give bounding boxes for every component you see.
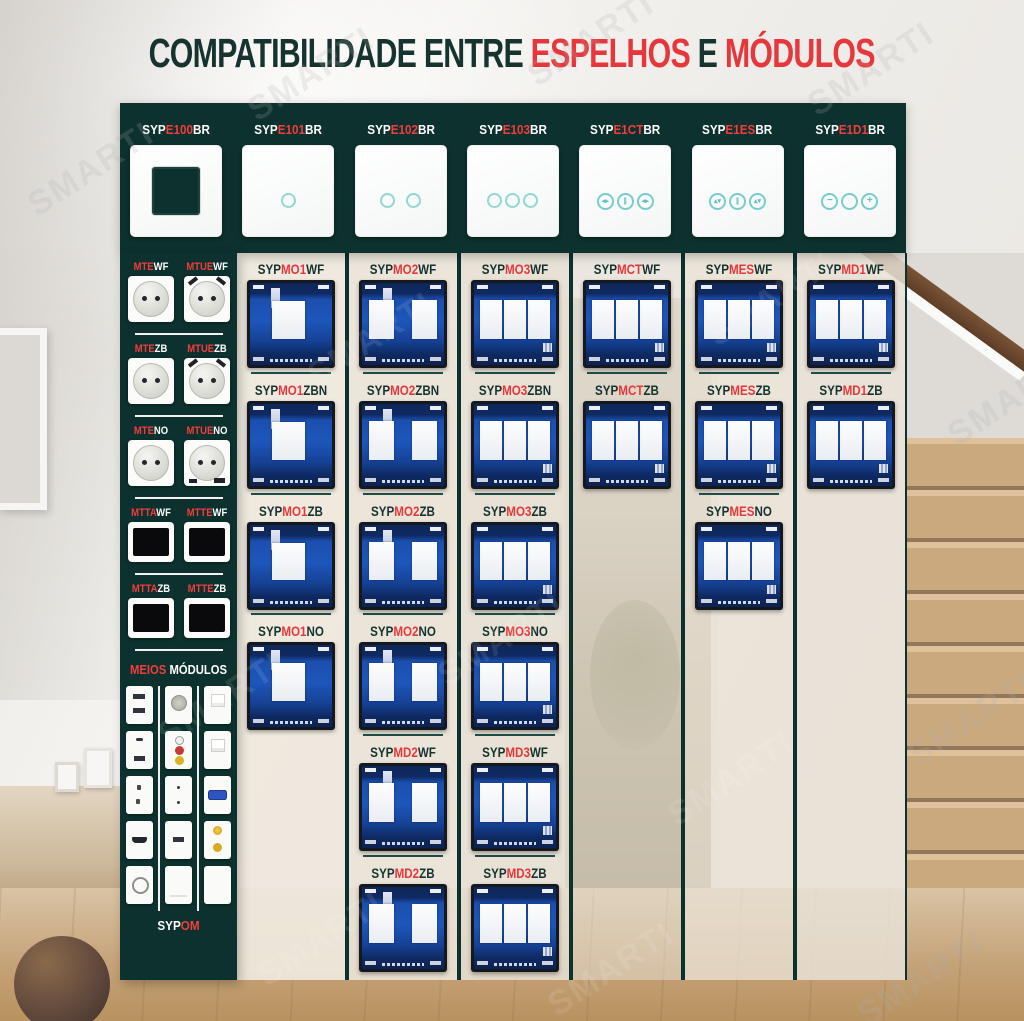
module-pcb-photo: [359, 522, 447, 610]
divider: [135, 333, 223, 335]
faceplate-code: SYPE103BR: [462, 122, 563, 137]
touch-circle-icon: [487, 193, 502, 208]
faceplate-code: SYPE101BR: [238, 122, 339, 137]
module-pcb-photo: [359, 763, 447, 851]
screen-pair-row: MTTAZB MTTEZB: [120, 583, 237, 638]
touch-zone: [412, 904, 437, 943]
touch-zone: [369, 663, 394, 702]
touch-zone: [480, 904, 502, 943]
touch-zone: [412, 421, 437, 460]
module-cell: SYPMD3WF: [461, 736, 569, 857]
qr-code: [543, 585, 552, 594]
module-cell: SYPMO2NO: [349, 615, 457, 736]
pcb-print: [382, 359, 424, 362]
half-module-photo: [165, 821, 192, 859]
qr-code: [655, 343, 664, 352]
touch-zone: [369, 542, 394, 581]
module-code: SYPMO2WF: [357, 262, 450, 277]
touch-zone: [504, 663, 526, 702]
touch-zone: [752, 542, 774, 581]
curtain-open-icon: ◂▸: [597, 193, 614, 210]
pcb-print: [606, 480, 648, 483]
module-pcb-photo: [471, 401, 559, 489]
touch-zone: [480, 663, 502, 702]
faceplate-card: SYPE102BR: [345, 103, 457, 253]
divider: [135, 573, 223, 575]
sidebar-module: MTTAZB: [127, 583, 175, 638]
module-column-mo3: SYPMO3WF SYPMO3ZBN SYP: [461, 253, 573, 980]
qr-code: [655, 464, 664, 473]
divider: [135, 497, 223, 499]
touch-zone: [412, 300, 437, 339]
touch-zone: [272, 422, 305, 460]
sideboard: [0, 786, 122, 896]
pcb-print: [494, 842, 536, 845]
module-cell: SYPMESNO: [685, 495, 793, 616]
pcb: [362, 766, 444, 848]
touch-zone: [504, 421, 526, 460]
half-module-photo: [126, 686, 153, 724]
pcb: [586, 404, 668, 486]
touch-screen-photo: [128, 598, 174, 638]
module-code: MTEWF: [130, 261, 171, 273]
socket-pair-row: MTENO MTUENO: [120, 425, 237, 486]
half-module-photo: [204, 866, 231, 904]
sidebar-panel: MTEWF MTUEWF MTEZB MTUEZB MTENO: [120, 253, 237, 980]
pause-icon: ∥: [617, 193, 634, 210]
pcb-print: [382, 601, 424, 604]
module-pcb-photo: [247, 280, 335, 368]
shade-up-down-icon: ▴▾: [709, 193, 726, 210]
touch-zone: [480, 421, 502, 460]
half-module-photo: [165, 866, 192, 904]
sidebar-module: MTEZB: [127, 343, 175, 404]
half-module-photo: [204, 731, 231, 769]
touch-zone: [369, 421, 394, 460]
half-modules-grid: [120, 686, 237, 911]
touch-zone: [480, 783, 502, 822]
sidebar-module: MTENO: [127, 425, 175, 486]
vase: [14, 936, 110, 1021]
faceplate-dimmer-photo: − +: [804, 145, 896, 237]
qr-code: [767, 343, 776, 352]
pcb-print: [718, 601, 760, 604]
shade-up-down-icon: ▴▾: [749, 193, 766, 210]
module-code: SYPMESZB: [693, 383, 786, 398]
touch-zone: [369, 300, 394, 339]
module-code: SYPMESWF: [693, 262, 786, 277]
pcb: [362, 525, 444, 607]
module-code: MTENO: [130, 425, 171, 437]
faceplate-card: SYPE101BR: [232, 103, 344, 253]
photo-frame: [55, 762, 79, 792]
module-pcb-photo: [695, 522, 783, 610]
touch-zone: [704, 542, 726, 581]
module-column-mo2: SYPMO2WF SYPMO2ZBN SYP: [349, 253, 461, 980]
faceplate-card: SYPE1CTBR ◂▸ ∥ ◂▸: [569, 103, 681, 253]
module-pcb-photo: [359, 642, 447, 730]
infographic-canvas: SMARTI SMARTI SMARTI SMARTI SMARTI SMART…: [0, 0, 1024, 1021]
pcb-print: [382, 842, 424, 845]
socket-usb-photo: [184, 440, 230, 486]
touch-circle-icon: [523, 193, 538, 208]
screen-pair-row: MTTAWF MTTEWF: [120, 507, 237, 562]
module-cell: SYPMO3WF: [461, 253, 569, 374]
pcb-print: [830, 359, 872, 362]
sidebar-module: MTUEZB: [183, 343, 231, 404]
half-module-photo: [204, 686, 231, 724]
touch-zone: [369, 904, 394, 943]
module-code: SYPMO3WF: [469, 262, 562, 277]
touch-zone: [728, 300, 750, 339]
faceplate-code: SYPE1CTBR: [575, 122, 676, 137]
module-pcb-photo: [583, 401, 671, 489]
touch-zone: [728, 542, 750, 581]
module-code: SYPMESNO: [693, 504, 786, 519]
touch-zone: [616, 421, 638, 460]
faceplate-card: SYPE1ESBR ▴▾ ∥ ▴▾: [681, 103, 793, 253]
curtain-close-icon: ◂▸: [637, 193, 654, 210]
pcb: [362, 283, 444, 365]
touch-zone: [864, 300, 886, 339]
qr-code: [543, 705, 552, 714]
module-cell: SYPMD2ZB: [349, 857, 457, 978]
touch-zone: [528, 542, 550, 581]
pcb: [474, 887, 556, 969]
pcb: [474, 645, 556, 727]
module-pcb-photo: [471, 280, 559, 368]
sidebar-module: MTUENO: [183, 425, 231, 486]
socket-usb-photo: [184, 276, 230, 322]
module-cell: SYPMO1NO: [237, 615, 345, 736]
module-code: SYPMD3WF: [469, 745, 562, 760]
qr-code: [767, 464, 776, 473]
socket-photo: [128, 358, 174, 404]
page-title: COMPATIBILIDADE ENTRE ESPELHOS E MÓDULOS: [0, 30, 1024, 77]
half-modules-column: [121, 686, 158, 911]
faceplate-card: SYPE103BR: [457, 103, 569, 253]
module-column-mes: SYPMESWF SYPMESZB SYPM: [685, 253, 797, 980]
sidebar-module: MTTAWF: [127, 507, 175, 562]
touch-zone: [504, 300, 526, 339]
touch-zone: [728, 421, 750, 460]
socket-pair-row: MTEWF MTUEWF: [120, 261, 237, 322]
module-pcb-photo: [359, 280, 447, 368]
pcb-print: [494, 721, 536, 724]
pcb-print: [830, 480, 872, 483]
pause-icon: ∥: [729, 193, 746, 210]
module-code: SYPMO3ZBN: [469, 383, 562, 398]
module-cell: SYPMO1ZBN: [237, 374, 345, 495]
module-code: MTTAWF: [130, 507, 171, 519]
pcb-print: [606, 359, 648, 362]
touch-zone: [704, 421, 726, 460]
module-pcb-photo: [807, 401, 895, 489]
module-cell: SYPMD2WF: [349, 736, 457, 857]
module-code: SYPMD1WF: [805, 262, 898, 277]
qr-code: [767, 585, 776, 594]
module-cell: SYPMO3NO: [461, 615, 569, 736]
pcb: [698, 283, 780, 365]
title-highlight-espelhos: ESPELHOS: [531, 30, 690, 76]
touch-zone: [840, 300, 862, 339]
module-cell: SYPMESZB: [685, 374, 793, 495]
qr-code: [879, 464, 888, 473]
touch-zone: [480, 300, 502, 339]
module-cell: SYPMD3ZB: [461, 857, 569, 978]
faceplate-card: SYPE1D1BR − +: [794, 103, 906, 253]
pcb: [250, 525, 332, 607]
pcb-print: [494, 359, 536, 362]
touch-zone: [412, 663, 437, 702]
module-code: SYPMO2ZB: [357, 504, 450, 519]
pcb-print: [718, 480, 760, 483]
touch-zone: [528, 663, 550, 702]
faceplate-code: SYPE102BR: [350, 122, 451, 137]
half-module-photo: [165, 686, 192, 724]
touch-zone: [752, 300, 774, 339]
module-pcb-photo: [247, 522, 335, 610]
socket-pair-row: MTEZB MTUEZB: [120, 343, 237, 404]
photo-frame: [84, 748, 112, 788]
faceplate-card: SYPE100BR: [120, 103, 232, 253]
sidebar-module: MTTEWF: [183, 507, 231, 562]
faceplate-frame-photo: [130, 145, 222, 237]
faceplate-2gang-photo: [355, 145, 447, 237]
module-code: SYPMO2NO: [357, 624, 450, 639]
socket-photo: [128, 440, 174, 486]
module-cell: SYPMO3ZBN: [461, 374, 569, 495]
half-module-photo: [165, 776, 192, 814]
touch-zone: [412, 542, 437, 581]
module-pcb-photo: [695, 401, 783, 489]
pcb: [250, 645, 332, 727]
module-cell: SYPMO3ZB: [461, 495, 569, 616]
half-module-photo: [204, 776, 231, 814]
module-code: MTTEZB: [186, 583, 227, 595]
pcb: [362, 645, 444, 727]
module-code: SYPMCTWF: [581, 262, 674, 277]
title-part: COMPATIBILIDADE ENTRE: [149, 30, 531, 76]
touch-zone: [528, 904, 550, 943]
module-code: MTUENO: [186, 425, 227, 437]
module-cell: SYPMO1WF: [237, 253, 345, 374]
touch-circle-icon: [505, 193, 520, 208]
faceplate-header-band: SYPE100BR SYPE101BR SYPE102BR SYPE103BR …: [120, 103, 906, 253]
pcb: [474, 283, 556, 365]
module-pcb-photo: [695, 280, 783, 368]
touch-zone: [504, 904, 526, 943]
pcb: [474, 766, 556, 848]
touch-zone: [504, 542, 526, 581]
module-cell: SYPMO1ZB: [237, 495, 345, 616]
module-pcb-photo: [359, 884, 447, 972]
pcb: [810, 404, 892, 486]
module-column-mct: SYPMCTWF SYPMCTZB: [573, 253, 685, 980]
module-pcb-photo: [471, 763, 559, 851]
pcb-print: [382, 480, 424, 483]
touch-zone: [504, 783, 526, 822]
module-pcb-photo: [807, 280, 895, 368]
module-cell: SYPMD1WF: [797, 253, 905, 374]
pcb-print: [494, 601, 536, 604]
sidebar-module: MTTEZB: [183, 583, 231, 638]
faceplate-1gang-photo: [242, 145, 334, 237]
pcb: [474, 525, 556, 607]
socket-usb-photo: [184, 358, 230, 404]
pcb-print: [270, 601, 312, 604]
plus-icon: +: [861, 193, 878, 210]
half-module-photo: [126, 776, 153, 814]
qr-code: [879, 343, 888, 352]
pcb: [250, 283, 332, 365]
touch-circle-icon: [380, 193, 395, 208]
pcb: [698, 404, 780, 486]
divider: [135, 649, 223, 651]
pcb-print: [270, 721, 312, 724]
pcb: [810, 283, 892, 365]
module-code: MTTAZB: [130, 583, 171, 595]
pcb-print: [270, 480, 312, 483]
touch-screen-photo: [128, 522, 174, 562]
faceplate-code: SYPE1ESBR: [687, 122, 788, 137]
touch-zone: [816, 421, 838, 460]
module-cell: SYPMESWF: [685, 253, 793, 374]
touch-zone: [272, 301, 305, 339]
touch-zone: [864, 421, 886, 460]
touch-zone: [528, 421, 550, 460]
touch-zone: [816, 300, 838, 339]
pcb: [698, 525, 780, 607]
module-pcb-photo: [247, 642, 335, 730]
module-code: SYPMO1ZBN: [245, 383, 338, 398]
pcb-print: [494, 480, 536, 483]
module-code: SYPMCTZB: [581, 383, 674, 398]
module-code: MTTEWF: [186, 507, 227, 519]
pcb-print: [494, 963, 536, 966]
faceplate-curtain-photo: ◂▸ ∥ ◂▸: [579, 145, 671, 237]
module-code: SYPMO2ZBN: [357, 383, 450, 398]
module-code: SYPMD2WF: [357, 745, 450, 760]
module-cell: SYPMD1ZB: [797, 374, 905, 495]
qr-code: [543, 947, 552, 956]
half-modules-column: [197, 686, 236, 911]
half-module-photo: [126, 731, 153, 769]
touch-zone: [640, 421, 662, 460]
touch-screen-photo: [184, 598, 230, 638]
touch-zone: [704, 300, 726, 339]
module-code: SYPMO3ZB: [469, 504, 562, 519]
touch-zone: [616, 300, 638, 339]
framed-picture: [0, 328, 47, 510]
touch-circle-icon: [281, 193, 296, 208]
faceplate-code: SYPE1D1BR: [799, 122, 900, 137]
half-module-photo: [204, 821, 231, 859]
module-code: MTEZB: [130, 343, 171, 355]
half-module-photo: [126, 866, 153, 904]
module-pcb-photo: [471, 884, 559, 972]
pcb: [362, 404, 444, 486]
qr-code: [543, 343, 552, 352]
module-code: SYPMD1ZB: [805, 383, 898, 398]
sidebar-module: MTUEWF: [183, 261, 231, 322]
half-modules-heading: MEIOS MÓDULOS: [126, 663, 231, 677]
module-cell: SYPMO2ZBN: [349, 374, 457, 495]
touch-circle-icon: [406, 193, 421, 208]
module-code: SYPMO1ZB: [245, 504, 338, 519]
touch-zone: [480, 542, 502, 581]
qr-code: [543, 464, 552, 473]
pcb-print: [718, 359, 760, 362]
touch-screen-photo: [184, 522, 230, 562]
half-modules-code: SYPOM: [126, 918, 231, 933]
pcb: [362, 887, 444, 969]
module-cell: SYPMCTZB: [573, 374, 681, 495]
module-cell: SYPMCTWF: [573, 253, 681, 374]
pcb-print: [270, 359, 312, 362]
half-modules-column: [158, 686, 197, 911]
module-pcb-photo: [359, 401, 447, 489]
touch-zone: [272, 543, 305, 581]
pcb: [250, 404, 332, 486]
module-code: MTUEZB: [186, 343, 227, 355]
frame-opening: [152, 167, 200, 215]
module-code: MTUEWF: [186, 261, 227, 273]
pcb: [474, 404, 556, 486]
title-conjunction: E: [690, 30, 725, 76]
touch-zone: [528, 783, 550, 822]
title-highlight-modulos: MÓDULOS: [725, 30, 875, 76]
qr-code: [543, 826, 552, 835]
module-code: SYPMD3ZB: [469, 866, 562, 881]
module-code: SYPMO1WF: [245, 262, 338, 277]
touch-circle-icon: [841, 193, 858, 210]
module-column-mo1: SYPMO1WF SYPMO1ZBN SYP: [237, 253, 349, 980]
faceplate-code: SYPE100BR: [126, 122, 227, 137]
pcb: [586, 283, 668, 365]
module-code: SYPMO1NO: [245, 624, 338, 639]
touch-zone: [592, 421, 614, 460]
minus-icon: −: [821, 193, 838, 210]
pcb-print: [382, 721, 424, 724]
half-module-photo: [165, 731, 192, 769]
touch-zone: [412, 783, 437, 822]
module-pcb-photo: [583, 280, 671, 368]
touch-zone: [640, 300, 662, 339]
module-code: SYPMO3NO: [469, 624, 562, 639]
module-column-md1: SYPMD1WF SYPMD1ZB: [797, 253, 907, 980]
touch-zone: [369, 783, 394, 822]
touch-zone: [272, 663, 305, 701]
touch-zone: [840, 421, 862, 460]
module-cell: SYPMO2ZB: [349, 495, 457, 616]
sidebar-module: MTEWF: [127, 261, 175, 322]
socket-photo: [128, 276, 174, 322]
faceplate-shade-photo: ▴▾ ∥ ▴▾: [692, 145, 784, 237]
divider: [135, 415, 223, 417]
half-module-photo: [126, 821, 153, 859]
touch-zone: [592, 300, 614, 339]
module-code: SYPMD2ZB: [357, 866, 450, 881]
module-pcb-photo: [471, 522, 559, 610]
touch-zone: [752, 421, 774, 460]
module-cell: SYPMO2WF: [349, 253, 457, 374]
pcb-print: [382, 963, 424, 966]
module-pcb-photo: [471, 642, 559, 730]
module-pcb-photo: [247, 401, 335, 489]
faceplate-3gang-photo: [467, 145, 559, 237]
touch-zone: [528, 300, 550, 339]
